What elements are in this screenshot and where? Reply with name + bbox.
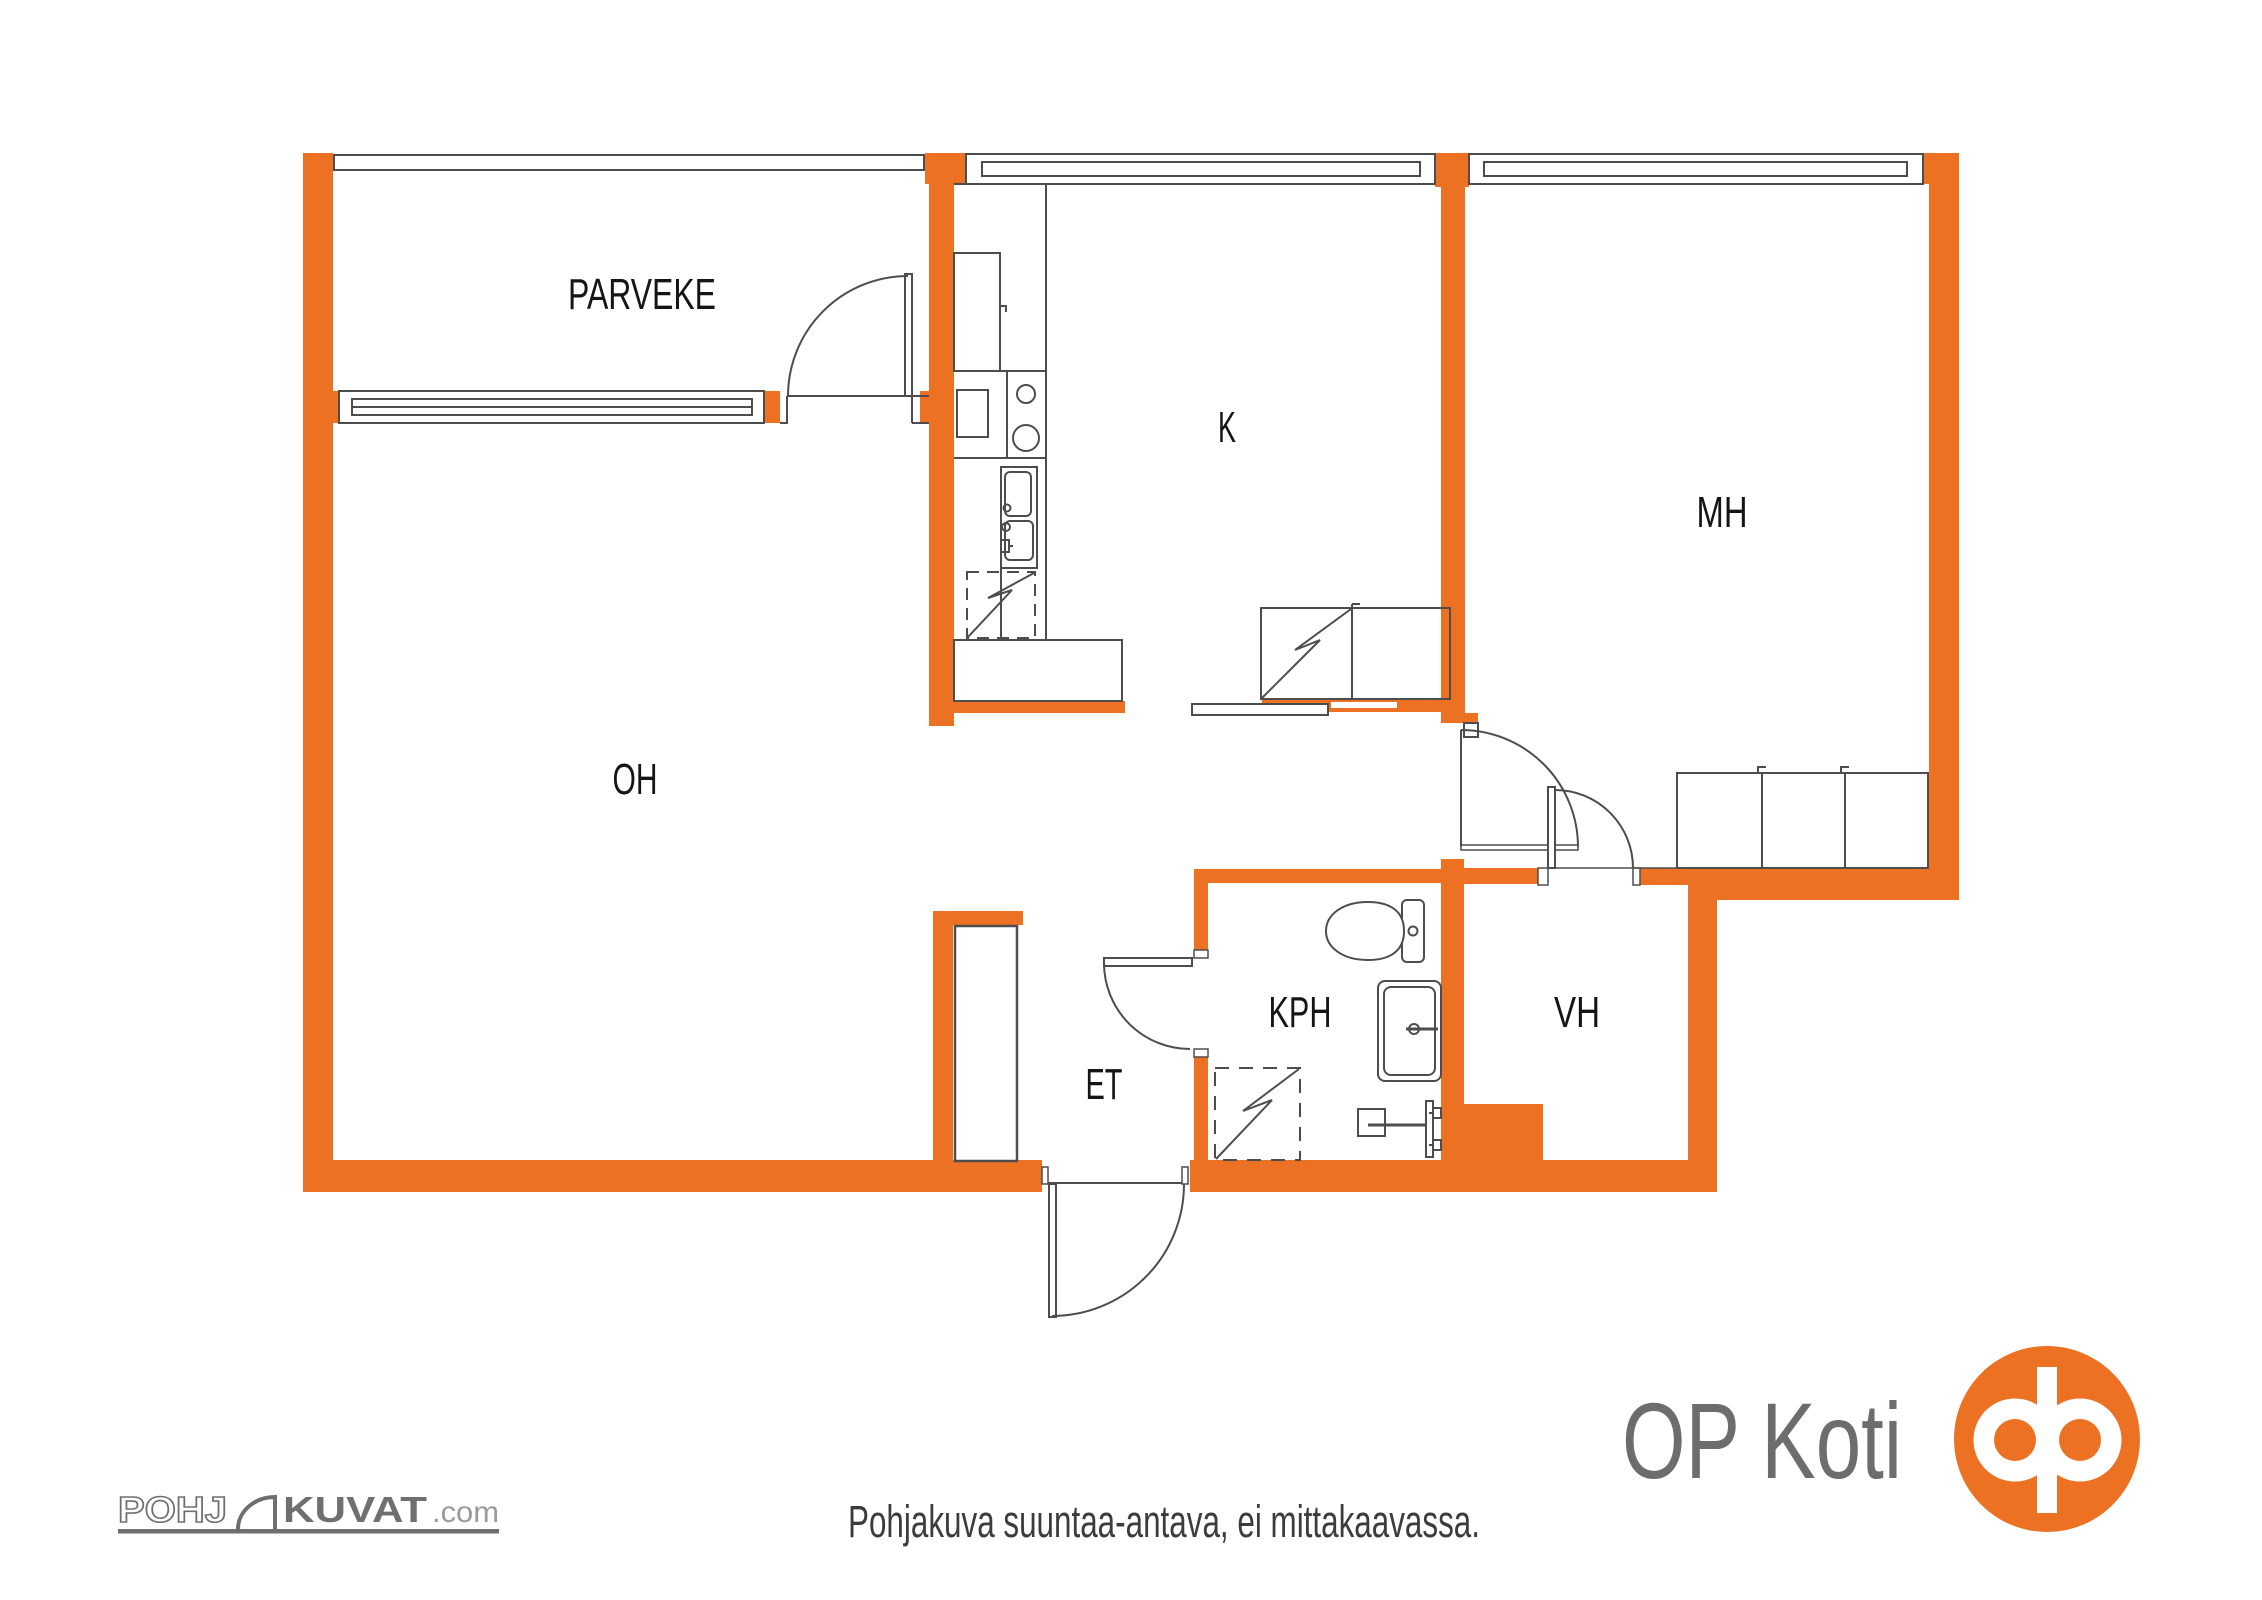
svg-text:OP Koti: OP Koti [1622,1380,1902,1501]
svg-text:K: K [1218,403,1236,452]
svg-text:PARVEKE: PARVEKE [568,270,716,319]
svg-text:POHJ: POHJ [118,1489,227,1530]
svg-text:KUVAT: KUVAT [283,1489,427,1530]
svg-text:KPH: KPH [1269,988,1332,1037]
svg-text:VH: VH [1554,988,1600,1037]
svg-text:.com: .com [432,1496,499,1529]
svg-text:MH: MH [1697,488,1748,537]
svg-text:OH: OH [613,755,658,804]
svg-text:Pohjakuva suuntaa-antava, ei m: Pohjakuva suuntaa-antava, ei mittakaavas… [848,1496,1480,1547]
svg-text:ET: ET [1086,1060,1123,1109]
